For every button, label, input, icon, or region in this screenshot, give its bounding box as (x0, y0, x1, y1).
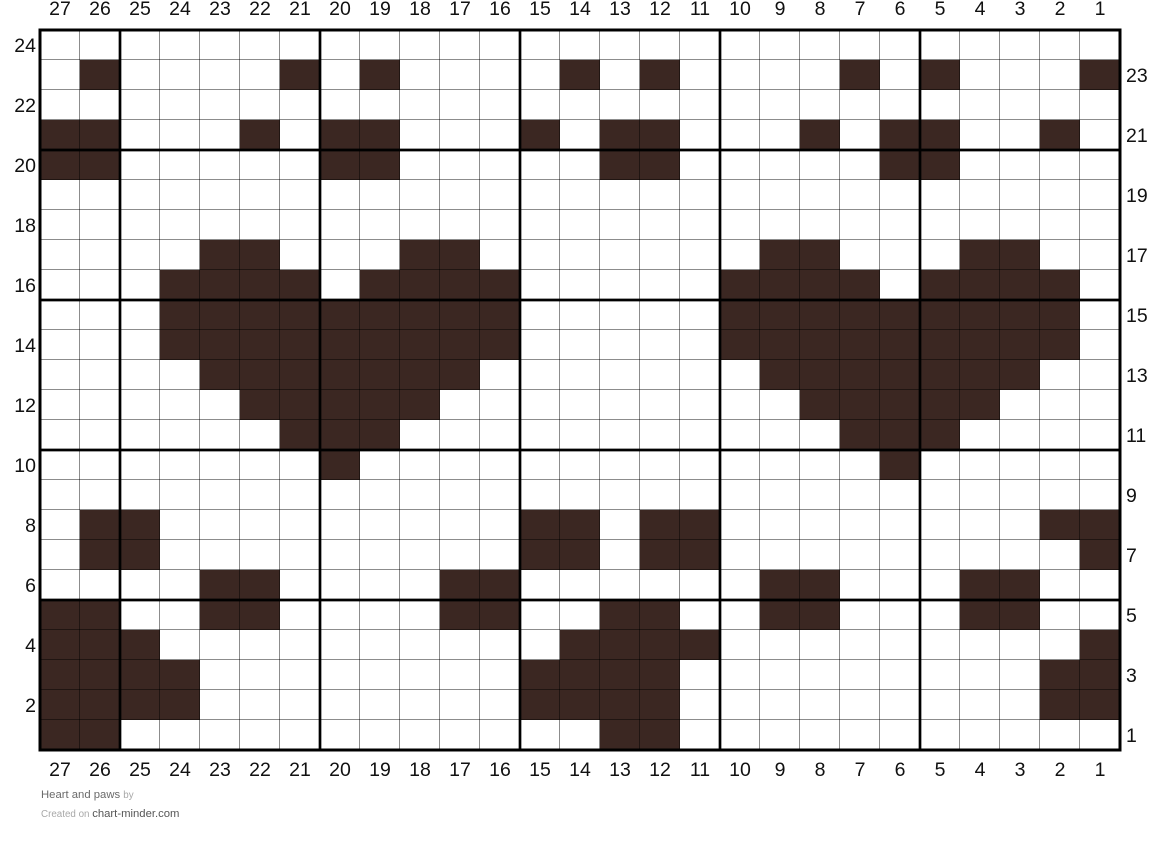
svg-text:22: 22 (14, 95, 36, 117)
svg-text:26: 26 (89, 0, 111, 20)
svg-text:1: 1 (1095, 0, 1106, 20)
svg-text:5: 5 (1126, 605, 1137, 627)
svg-text:10: 10 (729, 759, 751, 781)
svg-text:2: 2 (1055, 759, 1066, 781)
svg-text:18: 18 (409, 0, 431, 20)
svg-text:18: 18 (14, 215, 36, 237)
svg-text:23: 23 (209, 0, 231, 20)
svg-text:24: 24 (169, 0, 191, 20)
svg-text:2: 2 (1055, 0, 1066, 20)
svg-text:19: 19 (1126, 185, 1148, 207)
svg-text:9: 9 (1126, 485, 1137, 507)
svg-text:17: 17 (1126, 245, 1148, 267)
svg-text:22: 22 (249, 0, 271, 20)
svg-text:4: 4 (25, 635, 36, 657)
svg-text:8: 8 (25, 515, 36, 537)
svg-text:16: 16 (489, 0, 511, 20)
svg-text:3: 3 (1015, 759, 1026, 781)
svg-text:27: 27 (49, 759, 71, 781)
svg-text:15: 15 (529, 0, 551, 20)
svg-text:11: 11 (690, 0, 710, 20)
svg-text:26: 26 (89, 759, 111, 781)
svg-text:20: 20 (14, 155, 36, 177)
svg-text:7: 7 (1126, 545, 1137, 567)
svg-text:8: 8 (815, 759, 826, 781)
svg-text:3: 3 (1015, 0, 1026, 20)
svg-text:14: 14 (569, 759, 591, 781)
svg-text:6: 6 (895, 0, 906, 20)
svg-text:21: 21 (1126, 125, 1148, 147)
svg-text:8: 8 (815, 0, 826, 20)
svg-text:2: 2 (25, 695, 36, 717)
svg-text:Created on chart-minder.com: Created on chart-minder.com (41, 808, 179, 820)
svg-text:9: 9 (775, 759, 786, 781)
svg-text:5: 5 (935, 0, 946, 20)
svg-text:15: 15 (529, 759, 551, 781)
svg-text:16: 16 (489, 759, 511, 781)
svg-text:23: 23 (209, 759, 231, 781)
svg-text:14: 14 (14, 335, 36, 357)
svg-text:19: 19 (369, 0, 391, 20)
svg-text:6: 6 (25, 575, 36, 597)
svg-text:11: 11 (690, 759, 710, 781)
svg-text:10: 10 (729, 0, 751, 20)
svg-text:17: 17 (449, 759, 471, 781)
svg-text:Heart and paws by: Heart and paws by (41, 789, 134, 801)
svg-text:12: 12 (14, 395, 36, 417)
svg-text:11: 11 (1126, 425, 1146, 447)
svg-text:13: 13 (1126, 365, 1148, 387)
svg-text:25: 25 (129, 0, 151, 20)
svg-text:6: 6 (895, 759, 906, 781)
svg-text:20: 20 (329, 759, 351, 781)
svg-text:13: 13 (609, 0, 631, 20)
svg-text:5: 5 (935, 759, 946, 781)
svg-text:13: 13 (609, 759, 631, 781)
svg-text:4: 4 (975, 759, 986, 781)
svg-text:24: 24 (14, 35, 36, 57)
svg-text:7: 7 (855, 759, 866, 781)
svg-text:23: 23 (1126, 65, 1148, 87)
svg-text:22: 22 (249, 759, 271, 781)
svg-text:1: 1 (1095, 759, 1106, 781)
svg-text:9: 9 (775, 0, 786, 20)
svg-text:4: 4 (975, 0, 986, 20)
svg-text:17: 17 (449, 0, 471, 20)
svg-text:10: 10 (14, 455, 36, 477)
svg-text:18: 18 (409, 759, 431, 781)
svg-text:3: 3 (1126, 665, 1137, 687)
svg-text:19: 19 (369, 759, 391, 781)
svg-text:24: 24 (169, 759, 191, 781)
svg-text:7: 7 (855, 0, 866, 20)
svg-text:21: 21 (289, 759, 311, 781)
svg-text:25: 25 (129, 759, 151, 781)
svg-text:14: 14 (569, 0, 591, 20)
svg-text:27: 27 (49, 0, 71, 20)
svg-text:20: 20 (329, 0, 351, 20)
svg-text:12: 12 (649, 0, 671, 20)
svg-text:1: 1 (1126, 725, 1137, 747)
svg-text:16: 16 (14, 275, 36, 297)
svg-text:15: 15 (1126, 305, 1148, 327)
svg-text:12: 12 (649, 759, 671, 781)
svg-text:21: 21 (289, 0, 311, 20)
